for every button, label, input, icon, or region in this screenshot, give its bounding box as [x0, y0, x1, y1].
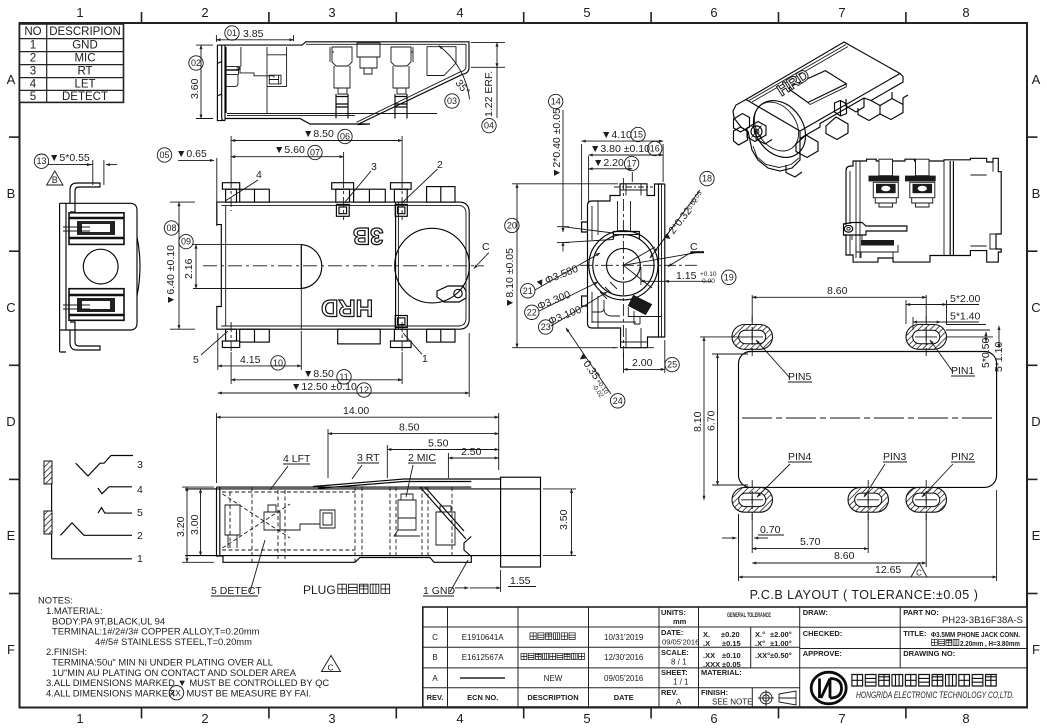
svg-text:2.20mm , H=3.80mm: 2.20mm , H=3.80mm [960, 639, 1020, 648]
svg-text:▼5*0.55: ▼5*0.55 [49, 152, 90, 164]
svg-text:C: C [328, 663, 334, 673]
svg-text:.X: .X [703, 639, 710, 648]
svg-text:3: 3 [30, 66, 36, 78]
svg-text:PLUG: PLUG [303, 583, 336, 597]
svg-text:C: C [690, 241, 698, 253]
svg-text:C: C [432, 633, 438, 642]
svg-text:A: A [7, 72, 16, 87]
svg-text:UNITS:: UNITS: [661, 608, 686, 617]
svg-text:5: 5 [583, 5, 590, 20]
svg-text:8.10: 8.10 [692, 411, 704, 432]
svg-text:7: 7 [838, 5, 845, 20]
svg-text:6.70: 6.70 [706, 410, 718, 431]
svg-text:06: 06 [340, 132, 350, 142]
svg-text:07: 07 [310, 148, 320, 158]
svg-text:TITLE:: TITLE: [903, 629, 926, 638]
svg-text:X.: X. [703, 630, 710, 639]
svg-text:-0.00: -0.00 [700, 278, 715, 285]
svg-text:mm: mm [673, 617, 687, 626]
svg-text:PART NO:: PART NO: [903, 608, 939, 617]
svg-text:B: B [52, 175, 58, 185]
svg-text:5*1.10: 5*1.10 [993, 341, 1005, 372]
svg-text:19: 19 [724, 272, 734, 282]
svg-text:REV.: REV. [427, 693, 444, 702]
svg-text:3.50: 3.50 [558, 509, 570, 530]
svg-text:CHECKED:: CHECKED: [803, 629, 843, 638]
svg-text:10/31'2019: 10/31'2019 [604, 633, 644, 642]
svg-text:8.60: 8.60 [827, 285, 848, 297]
svg-text:▼5.60: ▼5.60 [274, 144, 305, 156]
svg-text:2: 2 [201, 711, 208, 726]
svg-text:DATE: DATE [614, 693, 634, 702]
svg-text:09/05'2016: 09/05'2016 [662, 638, 699, 647]
svg-text:XX: XX [170, 689, 181, 698]
svg-text:NO: NO [24, 26, 41, 38]
svg-text:1 / 1: 1 / 1 [673, 678, 689, 687]
svg-text:10: 10 [273, 358, 283, 368]
svg-text:▼12.50 ±0.10: ▼12.50 ±0.10 [291, 381, 357, 393]
svg-text:4.ALL DIMENSIONS MARKER: 4.ALL DIMENSIONS MARKER [46, 687, 175, 698]
svg-text:5: 5 [137, 507, 143, 519]
svg-text:±0.10: ±0.10 [722, 651, 741, 660]
svg-text:3B: 3B [353, 222, 384, 249]
svg-text:D: D [6, 414, 15, 429]
svg-text:SEE NOTE: SEE NOTE [712, 698, 752, 707]
svg-text:B: B [432, 653, 437, 662]
svg-text:01: 01 [227, 28, 237, 38]
svg-text:±0.50°: ±0.50° [770, 651, 792, 660]
svg-text:04: 04 [484, 121, 494, 131]
svg-text:PH23-3B16F38A-S: PH23-3B16F38A-S [942, 615, 1023, 626]
svg-text:4#/5# STAINLESS STEEL,T=0.20mm: 4#/5# STAINLESS STEEL,T=0.20mm [95, 636, 252, 647]
svg-text:NOTES:: NOTES: [38, 595, 73, 606]
svg-text:5: 5 [583, 711, 590, 726]
svg-text:2: 2 [437, 159, 443, 171]
svg-text:X.°: X.° [755, 630, 765, 639]
svg-text:09: 09 [181, 237, 191, 247]
svg-text:▼6.40 ±0.10: ▼6.40 ±0.10 [165, 245, 177, 305]
svg-text:FINISH:: FINISH: [701, 688, 728, 697]
svg-text:5*0.50: 5*0.50 [980, 337, 992, 368]
svg-text:08: 08 [166, 223, 176, 233]
svg-text:3: 3 [328, 711, 335, 726]
svg-text:DESCRIPTION: DESCRIPTION [527, 693, 578, 702]
svg-text:2: 2 [30, 53, 36, 65]
svg-text:▼8.50: ▼8.50 [303, 128, 334, 140]
svg-text:3: 3 [137, 459, 143, 471]
svg-text:.X°: .X° [755, 639, 765, 648]
svg-text:D: D [1031, 414, 1040, 429]
svg-text:PIN4: PIN4 [788, 451, 812, 463]
svg-text:1: 1 [137, 553, 143, 565]
svg-text:HONGRIDA ELECTRONIC TECHNOLOGY: HONGRIDA ELECTRONIC TECHNOLOGY CO,LTD. [856, 690, 1014, 700]
svg-text:1: 1 [76, 711, 83, 726]
svg-text:REV.: REV. [661, 688, 678, 697]
svg-text:1: 1 [422, 353, 428, 365]
svg-text:1.15: 1.15 [676, 270, 697, 282]
svg-text:E: E [7, 528, 16, 543]
svg-text:PIN5: PIN5 [788, 371, 812, 383]
svg-text:.XX°: .XX° [755, 651, 770, 660]
svg-text:E: E [1032, 528, 1041, 543]
svg-text:7: 7 [838, 711, 845, 726]
svg-text:3.20: 3.20 [175, 516, 187, 537]
svg-text:C: C [1031, 300, 1040, 315]
svg-text:8.60: 8.60 [834, 550, 855, 562]
svg-text:3: 3 [371, 161, 377, 173]
svg-text:1: 1 [30, 40, 36, 52]
svg-text:14: 14 [551, 97, 561, 107]
svg-text:24: 24 [613, 396, 623, 406]
svg-text:B: B [1032, 186, 1041, 201]
svg-text:▼8.50: ▼8.50 [303, 368, 334, 380]
svg-text:1.22 ERF.: 1.22 ERF. [483, 71, 495, 117]
svg-text:3.60: 3.60 [189, 78, 201, 99]
svg-text:APPROVE:: APPROVE: [803, 649, 842, 658]
svg-text:GENERAL TOLERANCE: GENERAL TOLERANCE [727, 612, 771, 619]
svg-text:6: 6 [710, 5, 717, 20]
svg-text:▼2*0.40 ±0.05: ▼2*0.40 ±0.05 [551, 108, 563, 178]
svg-text:02: 02 [191, 58, 201, 68]
svg-text:2: 2 [137, 530, 143, 542]
svg-text:A: A [1032, 72, 1041, 87]
svg-text:▼0.65: ▼0.65 [176, 148, 207, 160]
svg-text:▼8.10 ±0.05: ▼8.10 ±0.05 [504, 248, 516, 308]
svg-text:SCALE:: SCALE: [661, 648, 689, 657]
svg-text:MIC: MIC [74, 53, 95, 65]
svg-text:5: 5 [193, 354, 199, 366]
svg-text:4.15: 4.15 [240, 354, 261, 366]
svg-text:4: 4 [456, 5, 463, 20]
svg-text:PIN3: PIN3 [883, 451, 907, 463]
svg-text:13: 13 [36, 156, 46, 166]
svg-text:P.C.B LAYOUT ( TOLERANCE:±0.0: P.C.B LAYOUT ( TOLERANCE:±0.05 ) [750, 588, 979, 602]
svg-text:20: 20 [507, 221, 517, 231]
svg-text:4: 4 [137, 484, 143, 496]
svg-text:3 RT: 3 RT [357, 452, 380, 464]
svg-text:.XX: .XX [703, 651, 715, 660]
svg-text:2 MIC: 2 MIC [408, 452, 436, 464]
svg-text:±0.20: ±0.20 [721, 630, 740, 639]
svg-text:SHEET:: SHEET: [661, 668, 688, 677]
svg-text:▼4.10: ▼4.10 [601, 129, 632, 141]
svg-text:5.50: 5.50 [428, 438, 449, 450]
svg-text:8 / 1: 8 / 1 [671, 658, 687, 667]
svg-text:03: 03 [447, 96, 457, 106]
svg-text:8.50: 8.50 [399, 422, 420, 434]
svg-text:E1910641A: E1910641A [462, 633, 504, 642]
svg-text:4: 4 [30, 79, 37, 91]
svg-text:22: 22 [527, 307, 537, 317]
svg-text:5*2.00: 5*2.00 [950, 293, 981, 305]
svg-text:C: C [916, 569, 922, 578]
svg-text:3.00: 3.00 [189, 514, 201, 535]
svg-text:▼2.20: ▼2.20 [593, 157, 624, 169]
svg-text:DETECT: DETECT [62, 91, 108, 103]
svg-text:Φ3.5MM PHONE JACK CONN.: Φ3.5MM PHONE JACK CONN. [931, 630, 1020, 639]
svg-text:A: A [432, 674, 438, 683]
svg-text:3.85: 3.85 [243, 28, 264, 40]
svg-text:C: C [482, 241, 490, 253]
svg-text:18: 18 [702, 174, 712, 184]
svg-text:4: 4 [456, 711, 463, 726]
svg-text:0.70: 0.70 [760, 524, 781, 536]
svg-text:DRAW:: DRAW: [803, 608, 828, 617]
svg-text:15: 15 [633, 130, 643, 140]
svg-text:F: F [7, 642, 15, 657]
svg-text:16: 16 [650, 144, 660, 154]
svg-text:2: 2 [201, 5, 208, 20]
svg-text:4 LFT: 4 LFT [283, 453, 311, 465]
svg-text:PIN1: PIN1 [951, 365, 975, 377]
svg-text:6: 6 [710, 711, 717, 726]
svg-text:8: 8 [962, 711, 969, 726]
svg-text:3: 3 [328, 5, 335, 20]
svg-text:25: 25 [667, 360, 677, 370]
svg-text:2.00: 2.00 [632, 357, 653, 369]
svg-text:21: 21 [523, 286, 533, 296]
svg-text:5*1.40: 5*1.40 [950, 311, 981, 323]
svg-text:5 DETECT: 5 DETECT [211, 585, 262, 597]
svg-text:MUST BE MEASURE BY FAI.: MUST BE MEASURE BY FAI. [187, 687, 312, 698]
svg-text:±0.15: ±0.15 [722, 639, 741, 648]
svg-text:▼3.80 ±0.10: ▼3.80 ±0.10 [590, 143, 650, 155]
svg-text:E1612567A: E1612567A [462, 653, 504, 662]
svg-text:±2.00°: ±2.00° [770, 630, 792, 639]
svg-text:14.00: 14.00 [343, 405, 369, 417]
svg-text:1.55: 1.55 [510, 575, 531, 587]
svg-text:DESCRIPION: DESCRIPION [49, 26, 121, 38]
svg-text:12/30'2016: 12/30'2016 [604, 653, 644, 662]
svg-text:DATE:: DATE: [661, 628, 683, 637]
svg-text:5: 5 [30, 91, 36, 103]
svg-text:HRD: HRD [321, 294, 373, 321]
svg-text:17: 17 [627, 159, 637, 169]
svg-text:8: 8 [962, 5, 969, 20]
svg-text:NEW: NEW [544, 674, 563, 683]
svg-text:2.16: 2.16 [183, 258, 195, 279]
svg-text:MATERIAL:: MATERIAL: [701, 668, 742, 677]
svg-text:PIN2: PIN2 [951, 451, 975, 463]
svg-text:A: A [676, 698, 682, 707]
svg-text:12.65: 12.65 [875, 564, 901, 576]
svg-text:F: F [1032, 642, 1040, 657]
svg-text:LET: LET [74, 79, 95, 91]
svg-text:09/05'2016: 09/05'2016 [604, 674, 644, 683]
svg-text:DRAWING NO:: DRAWING NO: [903, 649, 955, 658]
svg-text:5.70: 5.70 [800, 536, 821, 548]
svg-text:GND: GND [72, 40, 98, 52]
svg-text:RT: RT [77, 66, 92, 78]
svg-text:4: 4 [256, 169, 262, 181]
svg-text:+0.10: +0.10 [700, 271, 717, 278]
svg-text:23: 23 [541, 322, 551, 332]
svg-text:2.50: 2.50 [461, 446, 482, 458]
svg-text:ECN NO.: ECN NO. [467, 693, 498, 702]
svg-text:12: 12 [359, 385, 369, 395]
svg-text:1: 1 [76, 5, 83, 20]
svg-text:C: C [6, 300, 15, 315]
svg-text:05: 05 [159, 150, 169, 160]
svg-text:B: B [7, 186, 16, 201]
svg-text:±1.00°: ±1.00° [770, 639, 792, 648]
